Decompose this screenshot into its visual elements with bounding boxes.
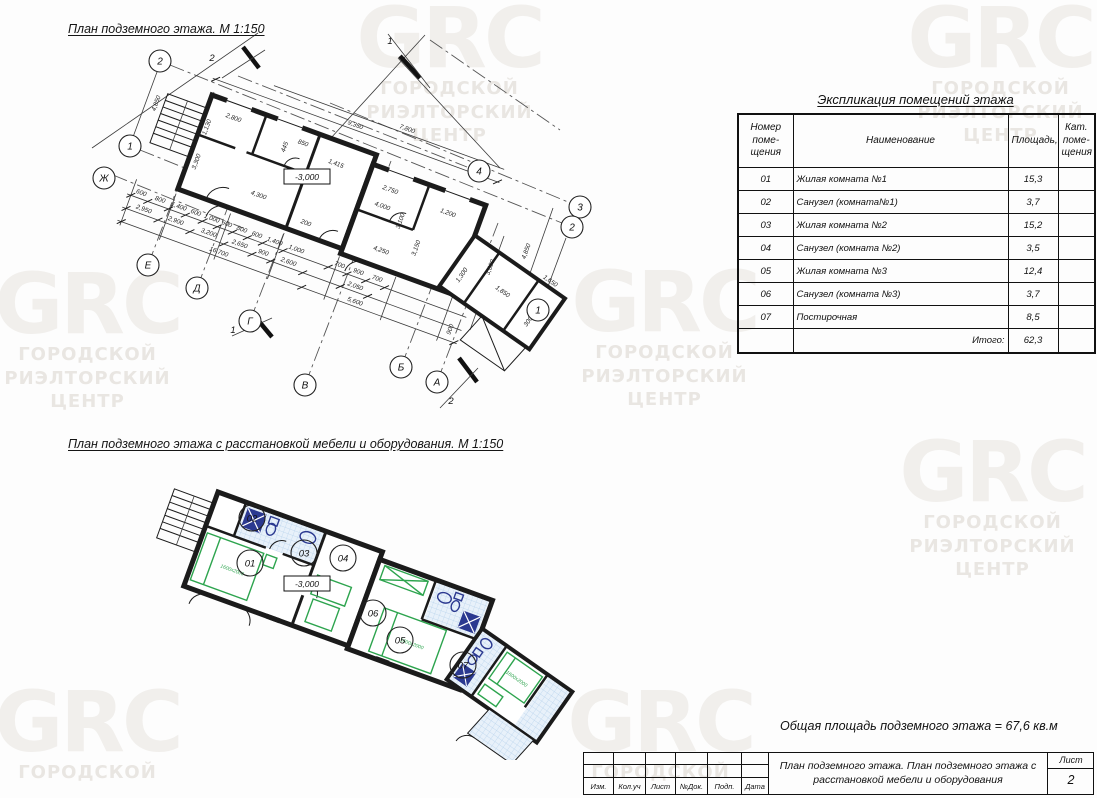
svg-text:1: 1 xyxy=(127,142,133,153)
svg-text:07: 07 xyxy=(458,661,469,672)
svg-text:1: 1 xyxy=(230,325,235,336)
svg-text:2: 2 xyxy=(568,223,575,234)
svg-text:800: 800 xyxy=(235,225,248,235)
elevation-mark: -3,000 xyxy=(284,169,330,184)
table-total-row: Итого: 62,3 xyxy=(738,329,1095,353)
stamp-col-label: Кол.уч xyxy=(614,778,645,794)
col-header-cat: Кат. поме- щения xyxy=(1058,114,1095,168)
axis-bubble: Б xyxy=(390,356,412,378)
axis-bubble: В xyxy=(294,374,316,396)
svg-text:2,600: 2,600 xyxy=(279,256,298,269)
svg-text:1,400: 1,400 xyxy=(170,201,188,213)
svg-text:В: В xyxy=(302,381,309,392)
svg-text:2: 2 xyxy=(447,396,454,407)
grc-watermark: GRC ГОРОДСКОЙ РИЭЛТОРСКИЙ ЦЕНТР xyxy=(880,434,1097,581)
svg-text:06: 06 xyxy=(368,609,379,620)
svg-text:1,400: 1,400 xyxy=(266,236,284,248)
table-row: 07 Постирочная 8,5 xyxy=(738,306,1095,329)
sheet-label: Лист xyxy=(1048,753,1094,769)
table-row: 06 Санузел (комната №3) 3,7 xyxy=(738,283,1095,306)
svg-text:600: 600 xyxy=(189,208,202,218)
stamp-col-label: Дата xyxy=(742,778,768,794)
title-block: Изм. Кол.уч Лист №Док. Подп. Дата План п… xyxy=(583,752,1094,795)
svg-text:600: 600 xyxy=(220,219,233,229)
sheet-number: 2 xyxy=(1048,769,1094,787)
svg-text:А: А xyxy=(433,378,441,389)
plan1-title: План подземного этажа. М 1:150 xyxy=(68,22,265,36)
svg-text:3,200: 3,200 xyxy=(200,227,218,239)
axis-bubble: 3 xyxy=(569,196,591,218)
svg-text:4,850: 4,850 xyxy=(151,94,163,112)
svg-text:04: 04 xyxy=(338,554,349,565)
sheet-cell: Лист 2 xyxy=(1047,753,1094,794)
axis-bubble: 2 xyxy=(561,216,583,238)
svg-text:Д: Д xyxy=(192,284,200,295)
svg-text:1,000: 1,000 xyxy=(287,244,305,256)
plan2-drawing: 1600x2000 1600x2000 xyxy=(0,430,660,760)
svg-text:2,950: 2,950 xyxy=(134,203,153,216)
axis-bubble: Ж xyxy=(93,167,115,189)
svg-text:05: 05 xyxy=(395,636,406,647)
axis-bubble: Д xyxy=(186,277,208,299)
svg-text:03: 03 xyxy=(299,549,310,560)
table-header-row: Номер поме- щения Наименование Площадь,м… xyxy=(738,114,1095,168)
svg-text:2: 2 xyxy=(208,53,215,64)
svg-text:2,050: 2,050 xyxy=(345,280,364,293)
table-row: 03 Жилая комната №2 15,2 xyxy=(738,214,1095,237)
svg-text:700: 700 xyxy=(371,274,384,284)
axis-bubble: 4 xyxy=(468,160,490,182)
explication-title: Экспликация помещений этажа xyxy=(737,92,1094,107)
table-row: 02 Санузел (комната№1) 3,7 xyxy=(738,191,1095,214)
plan2-title: План подземного этажа с расстановкой меб… xyxy=(68,437,503,451)
stamp-col-label: №Док. xyxy=(676,778,707,794)
axis-bubble: 1 xyxy=(119,135,141,157)
table-row: 05 Жилая комната №3 12,4 xyxy=(738,260,1095,283)
svg-text:01: 01 xyxy=(245,559,256,570)
total-area: 62,3 xyxy=(1008,329,1058,353)
svg-text:900: 900 xyxy=(352,267,365,277)
elevation-mark: -3,000 xyxy=(284,576,330,591)
svg-text:2: 2 xyxy=(156,57,163,68)
svg-text:4,850: 4,850 xyxy=(521,242,533,260)
stamp-col-label: Лист xyxy=(646,778,675,794)
svg-text:2,650: 2,650 xyxy=(230,238,249,251)
stamp-col-label: Изм. xyxy=(584,778,613,794)
axis-bubble: Е xyxy=(137,254,159,276)
drawing-sheet: GRC ГОРОДСКОЙ РИЭЛТОРСКИЙ ЦЕНТР GRC ГОРО… xyxy=(0,0,1097,798)
plan1-drawing: 1,850 1,300 1,650 300 2,800 1,130 445 85… xyxy=(0,0,660,430)
col-header-number: Номер поме- щения xyxy=(738,114,793,168)
total-label: Итого: xyxy=(793,329,1008,353)
svg-text:-3,000: -3,000 xyxy=(295,579,319,589)
building-plan2: 1600x2000 1600x2000 xyxy=(120,478,595,760)
svg-text:5,600: 5,600 xyxy=(346,296,364,308)
stamp-columns: Изм. Кол.уч Лист №Док. Подп. Дата xyxy=(584,753,769,794)
svg-text:600: 600 xyxy=(135,188,148,198)
svg-text:Б: Б xyxy=(398,363,405,374)
svg-text:1: 1 xyxy=(535,306,541,317)
svg-text:600: 600 xyxy=(251,230,264,240)
col-header-name: Наименование xyxy=(793,114,1008,168)
table-row: 01 Жилая комната №1 15,3 xyxy=(738,168,1095,191)
axis-bubble: Г xyxy=(239,310,261,332)
svg-text:02: 02 xyxy=(247,514,258,525)
axis-bubble: 2 xyxy=(149,50,171,72)
axis-bubble: А xyxy=(426,371,448,393)
svg-text:9,350: 9,350 xyxy=(347,119,365,131)
document-title: План подземного этажа. План подземного э… xyxy=(769,753,1047,794)
svg-text:4: 4 xyxy=(476,167,482,178)
table-row: 04 Санузел (комната №2) 3,5 xyxy=(738,237,1095,260)
svg-text:Ж: Ж xyxy=(98,174,109,185)
svg-text:1: 1 xyxy=(387,36,392,47)
svg-text:1,000: 1,000 xyxy=(203,213,221,225)
svg-text:7,800: 7,800 xyxy=(398,123,416,135)
svg-text:-3,000: -3,000 xyxy=(295,172,319,182)
stamp-col-label: Подп. xyxy=(708,778,741,794)
svg-text:900: 900 xyxy=(445,323,455,336)
svg-text:Е: Е xyxy=(145,261,152,272)
explication-table: Экспликация помещений этажа Номер поме- … xyxy=(737,92,1094,354)
svg-text:3: 3 xyxy=(577,203,583,214)
building-plan1: 1,850 1,300 1,650 300 2,800 1,130 445 85… xyxy=(114,44,605,385)
total-area-note: Общая площадь подземного этажа = 67,6 кв… xyxy=(780,719,1052,733)
axis-bubble: 1 xyxy=(527,299,549,321)
col-header-area: Площадь,м2 xyxy=(1008,114,1058,168)
